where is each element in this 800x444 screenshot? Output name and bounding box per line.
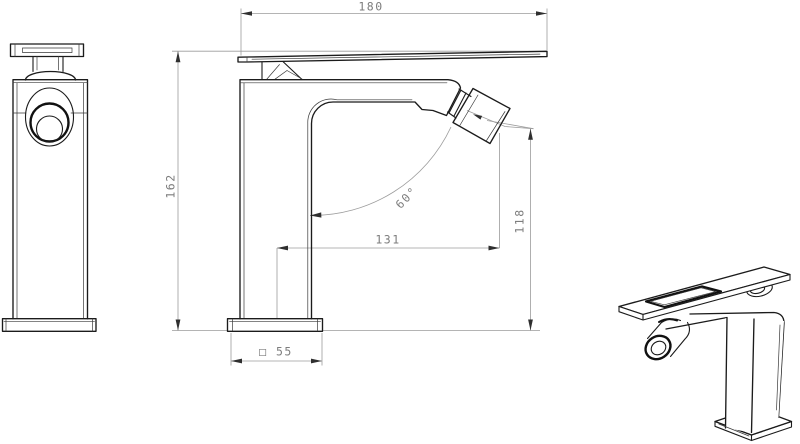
perspective-view bbox=[619, 267, 792, 441]
aerator-outlet-ring bbox=[31, 104, 69, 142]
dim-label-overall-width: 180 bbox=[358, 1, 383, 13]
dimension-linework bbox=[172, 9, 547, 366]
dimension-arrowheads bbox=[176, 11, 547, 363]
side-elevation-view bbox=[3, 44, 97, 331]
faucet-technical-drawing bbox=[0, 0, 800, 444]
front-elevation-view bbox=[228, 51, 548, 331]
dim-label-overall-height: 162 bbox=[165, 173, 177, 198]
handle-dome bbox=[26, 72, 76, 81]
base-plate bbox=[3, 319, 97, 332]
aerator-outlet bbox=[641, 331, 675, 364]
base-plate bbox=[228, 319, 323, 332]
technical-drawing-canvas: 180 162 131 118 60° □ 55 bbox=[0, 0, 800, 444]
aerator-neck bbox=[448, 89, 472, 118]
handle-recess-end bbox=[23, 48, 73, 53]
handle-plate-end bbox=[11, 44, 84, 57]
aerator-mount-ring bbox=[26, 88, 74, 146]
column-face bbox=[726, 318, 785, 433]
handle-plate-top bbox=[619, 267, 790, 315]
angle-arc bbox=[310, 127, 451, 216]
dim-label-base-square: □ 55 bbox=[259, 346, 293, 358]
handle-stem bbox=[262, 62, 302, 80]
dim-label-outlet-height: 118 bbox=[514, 208, 526, 233]
faucet-body-outline bbox=[240, 80, 461, 319]
dim-label-spout-reach: 131 bbox=[375, 234, 400, 246]
